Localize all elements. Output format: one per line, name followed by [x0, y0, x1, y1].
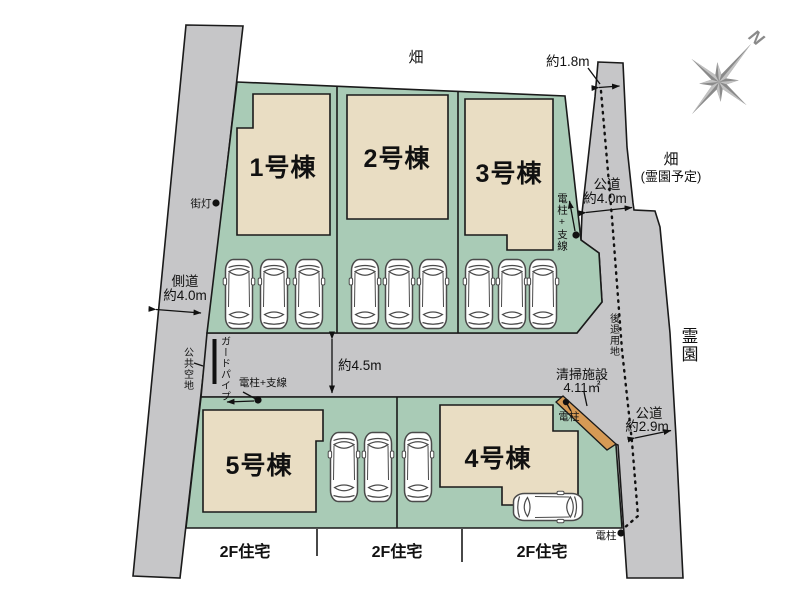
building-1-label: 1号棟	[250, 154, 317, 182]
car-icon	[362, 433, 394, 502]
pole-wire-east-dot	[572, 231, 579, 238]
label-field-east-2: (霊園予定)	[641, 169, 702, 184]
label-guard-pipe: ガードパイプ	[219, 336, 231, 402]
building-2-label: 2号棟	[364, 145, 431, 173]
label-west-road-1: 側道	[172, 274, 199, 289]
car-icon	[514, 491, 583, 523]
building-3-label: 3号棟	[476, 160, 543, 188]
car-icon	[223, 260, 255, 329]
street-light-dot	[212, 199, 219, 206]
label-southeast-road-2: 約2.9m	[625, 419, 669, 434]
car-icon	[527, 260, 559, 329]
car-icon	[258, 260, 290, 329]
label-pole-wire-east: 電柱+支線	[556, 193, 568, 252]
pole-south-dot	[617, 529, 624, 536]
compass-rose-icon: N	[664, 7, 790, 138]
label-west-road-2: 約4.0m	[163, 288, 207, 303]
car-icon	[463, 260, 495, 329]
building-4-label: 4号棟	[465, 445, 532, 473]
car-icon	[328, 433, 360, 502]
label-dim-mid-road: 約4.5m	[338, 358, 382, 373]
label-pole-wire-west: 電柱+支線	[239, 376, 288, 389]
label-cemetery: 霊園	[679, 327, 698, 363]
label-field-east-1: 畑	[663, 151, 678, 168]
car-icon	[402, 433, 434, 502]
south-house-label-1: 2F住宅	[220, 542, 271, 561]
site-plan-drawing: N 畑 約1.8m 畑 (霊園予定) 公道 約4.0m 電柱+支線 霊園 後退用…	[0, 0, 800, 601]
label-street-light: 街灯	[191, 197, 212, 210]
label-east-road-2: 約4.0m	[583, 191, 627, 206]
compass-north-label: N	[745, 26, 769, 50]
car-icon	[293, 260, 325, 329]
label-field-top: 畑	[408, 49, 423, 66]
guard-pipe-bar	[213, 339, 217, 384]
south-house-label-2: 2F住宅	[372, 542, 423, 561]
label-cleaning-2: 4.11㎡	[563, 380, 600, 395]
label-setback-land: 後退用地	[608, 312, 620, 357]
south-house-label-3: 2F住宅	[517, 542, 568, 561]
car-icon	[496, 260, 528, 329]
label-public-open-space: 公共空地	[182, 347, 194, 391]
car-icon	[417, 260, 449, 329]
car-icon	[383, 260, 415, 329]
pole-wire-west-dot	[254, 396, 261, 403]
pole-mid-dot	[563, 399, 569, 405]
label-east-road-1: 公道	[594, 177, 621, 192]
car-icon	[349, 260, 381, 329]
label-dim-east-entry: 約1.8m	[546, 54, 590, 69]
building-5-label: 5号棟	[226, 452, 293, 480]
site-plan: N 畑 約1.8m 畑 (霊園予定) 公道 約4.0m 電柱+支線 霊園 後退用…	[0, 0, 800, 601]
label-pole-mid: 電柱	[559, 410, 580, 423]
label-pole-south: 電柱	[596, 529, 617, 542]
